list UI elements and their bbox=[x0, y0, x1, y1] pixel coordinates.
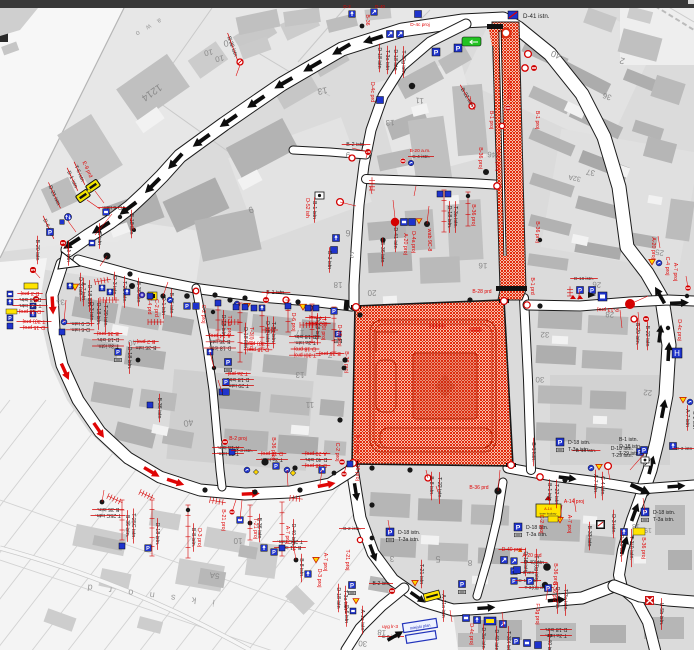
svg-text:P: P bbox=[272, 550, 276, 556]
svg-text:13: 13 bbox=[317, 85, 329, 97]
svg-text:F-3g proj: F-3g proj bbox=[534, 603, 540, 624]
svg-text:C-2 proj: C-2 proj bbox=[538, 515, 544, 534]
svg-text:D-18 istn.: D-18 istn. bbox=[264, 321, 270, 344]
svg-text:T-3a istn.: T-3a istn. bbox=[270, 322, 276, 344]
svg-text:D-3 istn: D-3 istn bbox=[676, 446, 693, 452]
svg-text:30: 30 bbox=[357, 639, 367, 649]
svg-text:T-3a istn.: T-3a istn. bbox=[653, 517, 674, 523]
svg-text:D-15 proj: D-15 proj bbox=[19, 308, 41, 314]
svg-text:B-1 proj: B-1 proj bbox=[488, 111, 494, 130]
svg-text:B-2 istn.: B-2 istn. bbox=[343, 526, 361, 532]
svg-text:B-1 istn: B-1 istn bbox=[546, 483, 552, 501]
svg-text:T-3a istn.: T-3a istn. bbox=[97, 342, 119, 348]
svg-text:D-3 istn.: D-3 istn. bbox=[235, 448, 253, 454]
svg-text:D-18 istn: D-18 istn bbox=[522, 551, 528, 572]
svg-text:T-3(I) proj: T-3(I) proj bbox=[23, 318, 46, 324]
svg-text:T-30I proj: T-30I proj bbox=[320, 318, 326, 340]
svg-text:D-18 istn.: D-18 istn. bbox=[19, 296, 42, 302]
svg-text:P: P bbox=[48, 230, 52, 236]
svg-text:C-2 proj: C-2 proj bbox=[200, 305, 206, 324]
svg-text:C-2 prd: C-2 prd bbox=[153, 299, 159, 317]
svg-text:P: P bbox=[350, 583, 354, 589]
svg-text:11: 11 bbox=[415, 96, 425, 106]
svg-text:D-6 istn: D-6 istn bbox=[343, 605, 349, 623]
svg-text:T-3(I) istn.: T-3(I) istn. bbox=[628, 536, 634, 560]
svg-text:D-41 istn.: D-41 istn. bbox=[523, 13, 550, 20]
svg-text:B-2 proj: B-2 proj bbox=[229, 436, 247, 442]
svg-text:P: P bbox=[558, 440, 563, 447]
svg-text:B-41 proj: B-41 proj bbox=[506, 77, 512, 99]
svg-text:B-1 istn.: B-1 istn. bbox=[619, 437, 638, 443]
svg-text:P: P bbox=[643, 510, 648, 517]
svg-text:T-3a istn: T-3a istn bbox=[384, 50, 390, 70]
svg-text:T-21 proj: T-21 proj bbox=[252, 518, 258, 539]
svg-text:D-18 istn.: D-18 istn. bbox=[545, 626, 568, 632]
svg-text:P: P bbox=[434, 50, 439, 57]
svg-text:B-1 prd: B-1 prd bbox=[529, 277, 535, 294]
svg-text:B-36 prd: B-36 prd bbox=[469, 485, 488, 491]
svg-text:6: 6 bbox=[345, 228, 350, 238]
svg-text:D-4c prd: D-4c prd bbox=[369, 82, 375, 102]
svg-text:D-6 istn.: D-6 istn. bbox=[70, 326, 90, 332]
svg-text:P: P bbox=[528, 579, 532, 585]
svg-text:10: 10 bbox=[233, 536, 242, 545]
svg-text:B-36 proj: B-36 proj bbox=[270, 437, 276, 459]
svg-text:A-7 istn: A-7 istn bbox=[684, 409, 690, 427]
svg-text:D-18 istn.: D-18 istn. bbox=[227, 376, 250, 382]
svg-text:D-18 istn.: D-18 istn. bbox=[554, 587, 560, 610]
svg-text:A-14: A-14 bbox=[544, 507, 551, 511]
svg-text:13: 13 bbox=[295, 370, 304, 379]
svg-text:T-30I istn: T-30I istn bbox=[505, 631, 511, 650]
svg-text:D-18 proj: D-18 proj bbox=[336, 325, 342, 347]
svg-text:D-6 istn.: D-6 istn. bbox=[102, 204, 122, 210]
svg-text:P: P bbox=[116, 350, 120, 356]
svg-text:30: 30 bbox=[535, 375, 545, 384]
svg-text:T-3a istn.: T-3a istn. bbox=[398, 537, 419, 543]
svg-text:A-1a istn: A-1a istn bbox=[359, 610, 365, 631]
svg-text:D-40: D-40 bbox=[375, 4, 385, 9]
svg-text:D-3 istn.: D-3 istn. bbox=[610, 514, 616, 534]
svg-text:B-36 istn.: B-36 istn. bbox=[97, 506, 119, 512]
svg-text:D-40 istn.: D-40 istn. bbox=[546, 634, 552, 650]
svg-text:B-1 istn.: B-1 istn. bbox=[530, 442, 536, 461]
svg-text:B-2 istn: B-2 istn bbox=[373, 581, 390, 587]
svg-text:T-3(I) proj: T-3(I) proj bbox=[248, 327, 254, 350]
svg-text:T-25C istn.: T-25C istn. bbox=[95, 512, 121, 518]
svg-text:B-36: B-36 bbox=[364, 14, 370, 25]
svg-text:B-29 istn.: B-29 istn. bbox=[634, 323, 640, 345]
svg-text:C-4 istn.: C-4 istn. bbox=[599, 476, 605, 496]
svg-text:B-28 prd: B-28 prd bbox=[472, 289, 491, 295]
svg-text:D-18 proj: D-18 proj bbox=[294, 345, 316, 351]
svg-text:D-3 proj: D-3 proj bbox=[196, 528, 202, 547]
svg-text:P: P bbox=[8, 316, 12, 322]
svg-text:D-18 istn: D-18 istn bbox=[619, 444, 640, 450]
svg-text:T-3a istn.: T-3a istn. bbox=[562, 589, 568, 611]
svg-text:A-7 istn.: A-7 istn. bbox=[592, 474, 598, 493]
svg-text:P: P bbox=[460, 582, 464, 588]
svg-text:32: 32 bbox=[540, 330, 550, 339]
svg-text:B-8 istn.: B-8 istn. bbox=[428, 476, 434, 495]
svg-text:P: P bbox=[512, 579, 516, 585]
svg-text:T-25C istn.: T-25C istn. bbox=[130, 513, 136, 539]
svg-text:B-1 istn: B-1 istn bbox=[311, 201, 317, 219]
svg-text:D-18 istn.: D-18 istn. bbox=[314, 318, 320, 341]
svg-text:T-21 istn: T-21 istn bbox=[418, 564, 424, 584]
svg-text:B-36 istn: B-36 istn bbox=[135, 344, 156, 350]
svg-text:B-36 istn: B-36 istn bbox=[379, 242, 385, 263]
svg-text:C-9 istn.: C-9 istn. bbox=[70, 320, 90, 326]
svg-text:B-33 istn: B-33 istn bbox=[586, 526, 592, 547]
svg-text:B-2 proj: B-2 proj bbox=[137, 338, 156, 344]
svg-text:18: 18 bbox=[376, 628, 386, 638]
svg-text:D-4c proj: D-4c proj bbox=[676, 319, 682, 341]
svg-text:D-18 istn.: D-18 istn. bbox=[97, 336, 120, 342]
svg-text:T-29 istn.: T-29 istn. bbox=[102, 305, 108, 327]
svg-text:D-18 istn.: D-18 istn. bbox=[618, 535, 624, 558]
svg-text:A-7 proj: A-7 proj bbox=[672, 263, 678, 282]
svg-text:D-40 istn: D-40 istn bbox=[493, 629, 499, 650]
svg-text:T-3(I)g istn: T-3(I)g istn bbox=[533, 555, 539, 580]
svg-text:T-4 prd: T-4 prd bbox=[146, 298, 152, 315]
svg-text:wab 9C-8: wab 9C-8 bbox=[426, 229, 432, 252]
svg-text:A-7 proj: A-7 proj bbox=[566, 515, 572, 534]
svg-text:B-36 istn.: B-36 istn. bbox=[124, 515, 130, 537]
svg-text:11: 11 bbox=[305, 400, 314, 409]
svg-text:A-20 proj: A-20 proj bbox=[305, 450, 327, 456]
svg-text:B-20 istn: B-20 istn bbox=[34, 240, 40, 261]
svg-text:B-2 proj: B-2 proj bbox=[354, 435, 360, 454]
svg-text:P: P bbox=[332, 309, 336, 315]
svg-text:D-3 istn.: D-3 istn. bbox=[77, 277, 83, 297]
svg-text:T-30I proj: T-30I proj bbox=[294, 352, 316, 358]
svg-text:3: 3 bbox=[349, 250, 354, 259]
svg-text:C-4 istn.: C-4 istn. bbox=[412, 154, 430, 160]
svg-text:D-18 istn.: D-18 istn. bbox=[126, 347, 132, 370]
svg-text:B-36 proj: B-36 proj bbox=[552, 563, 558, 585]
svg-text:D-40 istn.: D-40 istn. bbox=[305, 456, 328, 462]
svg-text:B-8 istn.: B-8 istn. bbox=[298, 558, 304, 577]
svg-text:T-29 istn.: T-29 istn. bbox=[227, 382, 249, 388]
svg-text:22: 22 bbox=[642, 388, 652, 398]
svg-text:D-3 proj: D-3 proj bbox=[21, 290, 40, 296]
svg-text:B-36 proj: B-36 proj bbox=[97, 330, 119, 336]
svg-text:D-3 proj: D-3 proj bbox=[316, 569, 322, 588]
svg-text:P: P bbox=[642, 448, 646, 454]
svg-text:D-40 istn.: D-40 istn. bbox=[290, 524, 296, 547]
svg-text:P: P bbox=[514, 639, 518, 645]
svg-text:D-4a proj: D-4a proj bbox=[410, 231, 416, 253]
svg-text:16: 16 bbox=[478, 261, 488, 270]
svg-text:18: 18 bbox=[333, 280, 342, 289]
svg-text:D-18 istn.: D-18 istn. bbox=[154, 523, 160, 546]
svg-text:T-3a istn.: T-3a istn. bbox=[568, 447, 589, 453]
svg-text:D-40 proj: D-40 proj bbox=[502, 547, 523, 553]
svg-text:B-2 istn.: B-2 istn. bbox=[346, 142, 365, 148]
svg-text:T-3a istn.: T-3a istn. bbox=[452, 206, 458, 228]
svg-text:8: 8 bbox=[467, 558, 472, 567]
svg-text:B-1 istn.: B-1 istn. bbox=[266, 290, 285, 296]
svg-text:B-1 proj: B-1 proj bbox=[534, 111, 540, 130]
svg-text:P: P bbox=[388, 530, 393, 537]
svg-text:D-18 istn.: D-18 istn. bbox=[653, 510, 675, 516]
svg-text:U-5b istn.: U-5b istn. bbox=[658, 603, 664, 626]
svg-text:5: 5 bbox=[435, 554, 440, 564]
svg-text:T-30I istn.: T-30I istn. bbox=[18, 302, 41, 308]
svg-text:A-20 proj: A-20 proj bbox=[650, 237, 656, 259]
svg-text:P: P bbox=[226, 360, 230, 366]
svg-text:T-22 istn: T-22 istn bbox=[553, 484, 559, 504]
svg-text:D-18 istn.: D-18 istn. bbox=[294, 333, 317, 339]
svg-text:B-36 proj: B-36 proj bbox=[477, 147, 483, 169]
svg-text:B-20 a.m.: B-20 a.m. bbox=[410, 148, 431, 154]
svg-text:A-11a istn: A-11a istn bbox=[440, 594, 446, 618]
svg-text:3: 3 bbox=[389, 554, 394, 563]
svg-text:D-18 istn.: D-18 istn. bbox=[242, 327, 248, 350]
svg-text:D-52 ish: D-52 ish bbox=[304, 198, 310, 218]
svg-text:B-8 istn.: B-8 istn. bbox=[190, 528, 196, 547]
svg-text:D-4c proj: D-4c proj bbox=[410, 22, 429, 28]
svg-text:D-3 istn: D-3 istn bbox=[326, 251, 332, 269]
svg-text:B-22 istn: B-22 istn bbox=[644, 326, 650, 347]
svg-text:D-18 istn.: D-18 istn. bbox=[568, 440, 590, 446]
svg-text:A-7 proj: A-7 proj bbox=[284, 526, 290, 545]
svg-text:D-18 istn: D-18 istn bbox=[392, 49, 398, 70]
svg-text:H: H bbox=[674, 349, 680, 358]
svg-text:D-18 istn: D-18 istn bbox=[376, 47, 382, 68]
svg-text:D-18 istn.: D-18 istn. bbox=[446, 206, 452, 229]
svg-text:D-15 proj: D-15 proj bbox=[23, 324, 45, 330]
svg-text:P: P bbox=[456, 46, 461, 53]
svg-text:T-3a prd: T-3a prd bbox=[228, 370, 248, 376]
svg-text:B-36 istn: B-36 istn bbox=[209, 338, 230, 344]
svg-text:C-4 proj: C-4 proj bbox=[664, 257, 670, 276]
svg-text:P: P bbox=[224, 380, 228, 386]
svg-text:B-21 proj: B-21 proj bbox=[220, 509, 226, 531]
svg-text:D-18 istn.: D-18 istn. bbox=[398, 530, 420, 536]
svg-text:D-1 istn: D-1 istn bbox=[160, 297, 166, 315]
svg-text:D-18 istn.: D-18 istn. bbox=[95, 303, 101, 326]
svg-text:40: 40 bbox=[183, 417, 195, 429]
svg-text:A-20 proj: A-20 proj bbox=[402, 233, 408, 255]
svg-text:B-36 proj: B-36 proj bbox=[640, 537, 646, 559]
svg-text:C-2 proj: C-2 proj bbox=[334, 443, 340, 462]
svg-text:D-3 istn.: D-3 istn. bbox=[88, 302, 94, 322]
svg-text:20: 20 bbox=[367, 288, 376, 297]
svg-text:D-4c proj: D-4c proj bbox=[468, 623, 474, 645]
svg-text:P-13 proj: P-13 proj bbox=[597, 306, 619, 312]
svg-text:D-41 proj: D-41 proj bbox=[494, 149, 500, 171]
svg-text:B-36 proj: B-36 proj bbox=[319, 350, 341, 356]
svg-text:T-29 istn.: T-29 istn. bbox=[619, 451, 640, 457]
svg-text:P: P bbox=[185, 304, 189, 310]
svg-text:B-36 istn: B-36 istn bbox=[135, 282, 141, 303]
svg-text:13: 13 bbox=[385, 118, 395, 127]
svg-text:T-30g istn: T-30g istn bbox=[400, 50, 406, 73]
svg-text:D-3: D-3 bbox=[343, 4, 351, 9]
svg-text:B-36 istn: B-36 istn bbox=[156, 398, 162, 419]
svg-text:P: P bbox=[516, 525, 521, 532]
svg-text:D-3a istn: D-3a istn bbox=[480, 627, 486, 648]
svg-text:T-21 proj: T-21 proj bbox=[344, 550, 350, 571]
svg-text:D-6 proj: D-6 proj bbox=[290, 313, 296, 332]
svg-text:B-36 proj: B-36 proj bbox=[470, 204, 476, 226]
svg-text:D-18 istn.: D-18 istn. bbox=[220, 315, 226, 338]
svg-text:D-41 istn: D-41 istn bbox=[392, 227, 398, 248]
svg-text:D-18 istn: D-18 istn bbox=[335, 587, 341, 608]
svg-text:T-3a proj: T-3a proj bbox=[226, 316, 232, 337]
svg-text:P: P bbox=[146, 546, 150, 552]
svg-text:B-36 proj: B-36 proj bbox=[354, 459, 360, 481]
svg-text:D-6 istn: D-6 istn bbox=[96, 227, 102, 245]
svg-text:P: P bbox=[274, 464, 278, 470]
